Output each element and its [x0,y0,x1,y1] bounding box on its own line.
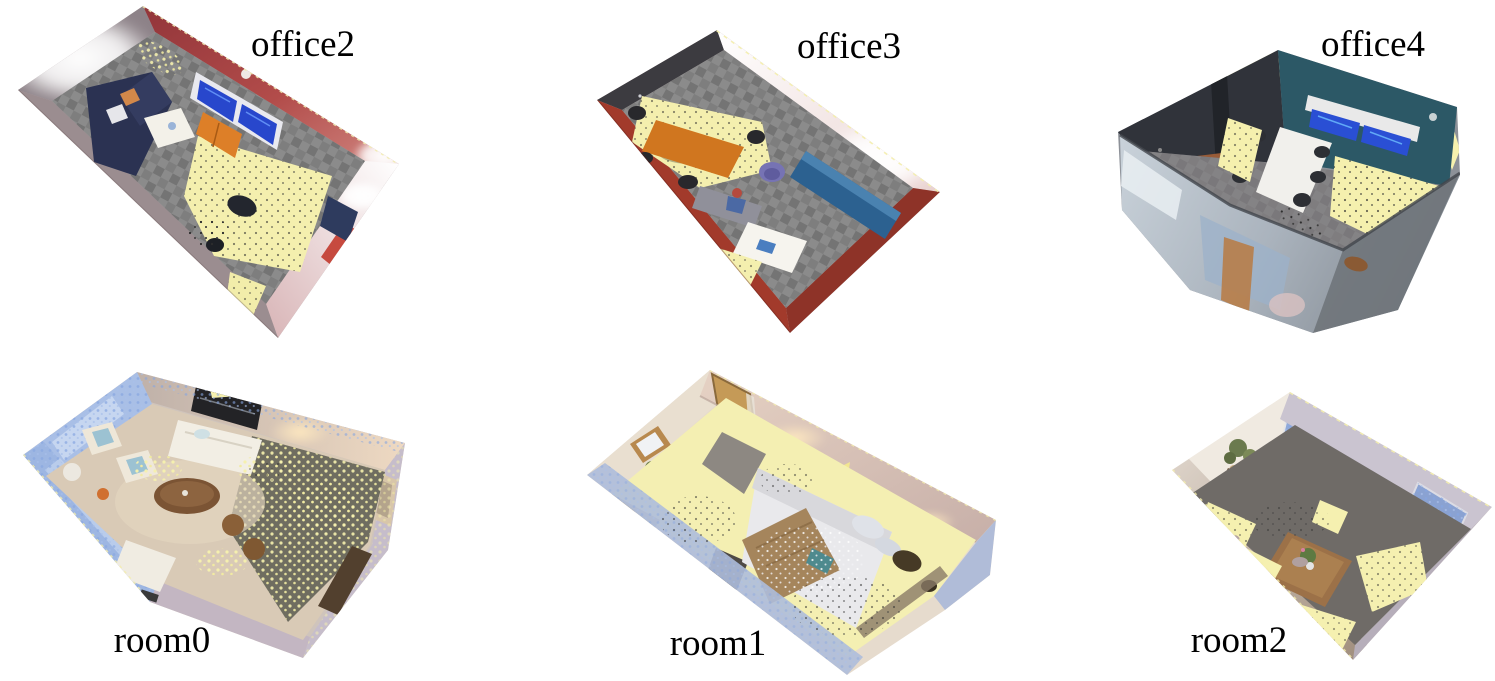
room0-stool [222,514,244,536]
office3-render [560,0,980,360]
point-cloud-figure: office2 [0,0,1495,681]
room0-stool [243,538,265,560]
room0-render [15,365,415,665]
office2-render [0,0,430,360]
room1-render [580,360,1005,681]
room2-label: room2 [1191,620,1288,661]
office4-label: office4 [1321,24,1425,65]
room1-label: room1 [670,623,767,664]
office2-label: office2 [251,24,355,65]
office3-label: office3 [797,26,901,67]
office4-render [1110,40,1470,350]
room0-label: room0 [114,620,211,661]
figure-canvas: office2 [0,0,1495,681]
